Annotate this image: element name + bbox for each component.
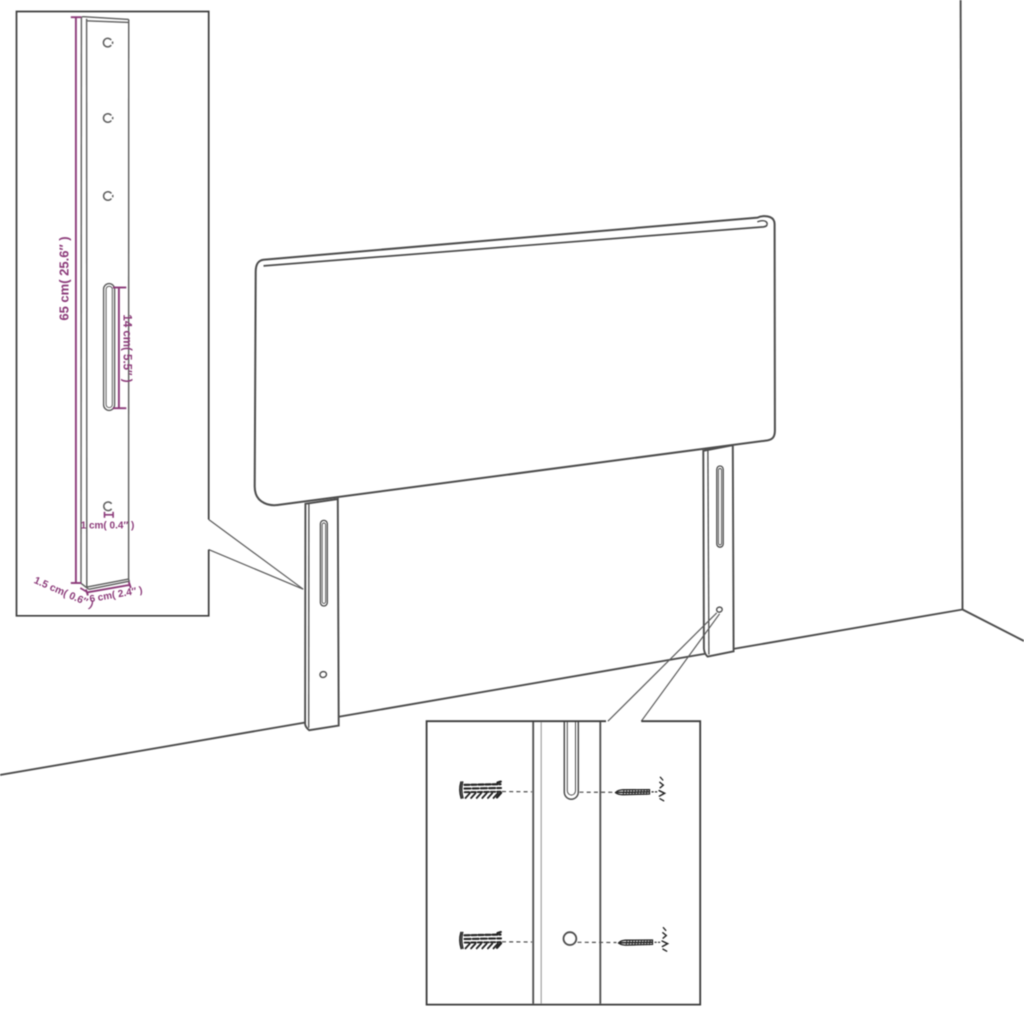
svg-text:65 cm( 25.6″ ): 65 cm( 25.6″ ) bbox=[57, 236, 72, 320]
svg-text:1.5 cm( 0.6″ ): 1.5 cm( 0.6″ ) bbox=[32, 575, 95, 611]
svg-text:14 cm( 5.5″ ): 14 cm( 5.5″ ) bbox=[121, 314, 133, 382]
svg-text:1 cm( 0.4″ ): 1 cm( 0.4″ ) bbox=[81, 521, 135, 532]
